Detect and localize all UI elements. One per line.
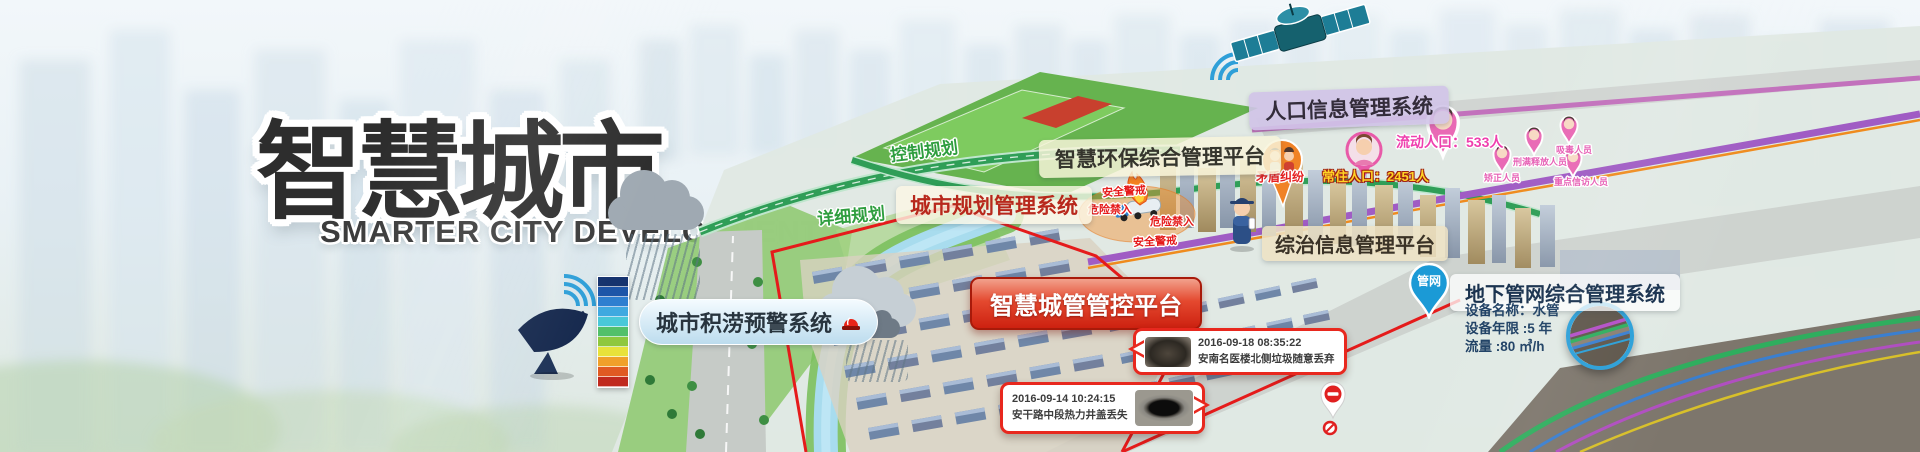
manhole-event-time: 2016-09-14 10:24:15	[1012, 392, 1128, 408]
legend-color-segment	[598, 347, 628, 357]
cordon-bottom-label: 安全警戒	[1133, 232, 1178, 250]
legend-color-segment	[598, 287, 628, 297]
siren-icon	[841, 313, 861, 331]
drug-label: 吸毒人员	[1556, 143, 1592, 156]
legend-color-segment	[598, 377, 628, 387]
pipe-device-name: 设备名称：水管	[1465, 302, 1560, 320]
legend-color-segment	[598, 307, 628, 317]
garbage-event-time: 2016-09-18 08:35:22	[1198, 336, 1335, 352]
underground-pipes-view	[1570, 306, 1630, 366]
drug-pin-icon	[1560, 116, 1577, 144]
pipe-pin-label: 管网	[1408, 272, 1450, 289]
city-mgmt-label[interactable]: 智慧城管管控平台	[970, 277, 1202, 330]
resident-count-label: 常住人口：2451人	[1322, 166, 1429, 185]
floating-count-label: 流动人口：533人	[1396, 132, 1503, 152]
urban-planning-label[interactable]: 城市规划管理系统	[896, 186, 1092, 224]
garbage-event-callout: 2016-09-18 08:35:22 安南名医楼北侧垃圾随意丢弃	[1133, 328, 1347, 375]
no-entry-small-icon	[1324, 422, 1336, 434]
pipe-flow-rate: 流量 :80 ㎥/h	[1465, 338, 1560, 356]
manhole-photo	[1135, 390, 1193, 426]
correction-label: 矫正人员	[1484, 171, 1520, 184]
legend-color-segment	[598, 317, 628, 327]
pipe-device-age: 设备年限 :5 年	[1465, 320, 1560, 338]
satellite-icon	[1212, 0, 1371, 80]
cordon-top-label: 安全警戒	[1101, 181, 1146, 200]
manhole-event-desc: 安干路中段热力井盖丢失	[1012, 408, 1128, 423]
no-entry-left-label: 危险禁入	[1088, 201, 1132, 217]
pipe-magnifier	[1566, 302, 1634, 370]
population-info-label[interactable]: 人口信息管理系统	[1248, 86, 1449, 131]
governance-info-label[interactable]: 综治信息管理平台	[1262, 226, 1448, 261]
map-markers-layer	[0, 0, 1920, 452]
legend-color-segment	[598, 277, 628, 287]
rain-cloud-icon	[608, 196, 704, 230]
released-pin-icon	[1525, 127, 1542, 155]
flood-warning-text: 城市积涝预警系统	[656, 306, 832, 338]
legend-color-segment	[598, 367, 628, 377]
satellite-dish-icon	[518, 276, 594, 380]
legend-color-segment	[598, 357, 628, 367]
manhole-event-callout: 2016-09-14 10:24:15 安干路中段热力井盖丢失	[1000, 382, 1205, 434]
garbage-photo	[1145, 337, 1191, 367]
smart-city-banner: 智慧城市 SMARTER CITY DEVELOPMENT 控制规划 详细规划 …	[0, 0, 1920, 452]
no-entry-right-label: 危险禁入	[1150, 213, 1194, 229]
policeman-icon	[1230, 198, 1255, 252]
legend-color-segment	[598, 327, 628, 337]
no-entry-pin-icon	[1321, 382, 1345, 418]
petition-label: 重点信访人员	[1554, 175, 1608, 188]
env-platform-label[interactable]: 智慧环保综合管理平台	[1039, 136, 1282, 178]
pipe-details-panel: 设备名称：水管 设备年限 :5 年 流量 :80 ㎥/h	[1465, 302, 1560, 356]
garbage-event-desc: 安南名医楼北侧垃圾随意丢弃	[1198, 352, 1335, 367]
flood-legend	[597, 276, 629, 388]
released-label: 刑满释放人员	[1513, 155, 1567, 168]
legend-color-segment	[598, 337, 628, 347]
flood-warning-label[interactable]: 城市积涝预警系统	[639, 299, 878, 345]
pipe-network-pin: 管网	[1408, 263, 1450, 319]
legend-color-segment	[598, 297, 628, 307]
